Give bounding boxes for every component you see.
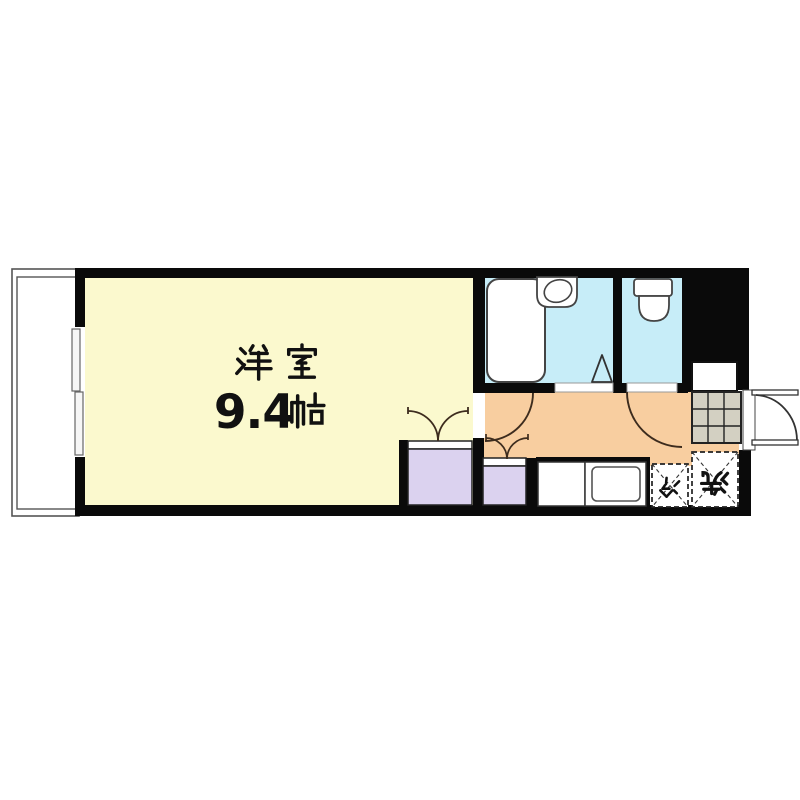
wall-top bbox=[75, 268, 749, 278]
wall-right-upper bbox=[737, 268, 749, 390]
closet-hall-edge bbox=[483, 458, 526, 466]
wall-room-bath bbox=[473, 268, 485, 393]
entrance-door-base bbox=[752, 440, 798, 445]
wall-under-bath bbox=[473, 383, 555, 393]
window bbox=[72, 327, 83, 457]
toilet-bowl bbox=[639, 296, 669, 321]
wall-right-lower bbox=[739, 450, 751, 516]
floorplan-drawing: 洋室 9.4 帖 冷 洗 bbox=[0, 0, 800, 800]
window-pane-upper bbox=[72, 329, 80, 391]
washer-label-text: 洗 bbox=[703, 467, 729, 497]
wall-closet-hall-right bbox=[526, 458, 538, 505]
wall-bottom bbox=[75, 505, 751, 516]
room-size-digits: 9.4 bbox=[214, 385, 294, 440]
closet-room bbox=[408, 441, 472, 505]
balcony-inner-line bbox=[17, 277, 79, 509]
entrance-door-leaf bbox=[752, 390, 798, 395]
entrance-door-icon bbox=[752, 390, 798, 445]
toilet-tank bbox=[634, 279, 672, 296]
bathroom-threshold bbox=[555, 383, 613, 392]
closet-room-edge bbox=[408, 441, 472, 449]
wall-stub-toilet-left bbox=[613, 383, 627, 393]
shoe-cabinet-icon bbox=[692, 362, 737, 391]
washbasin-icon bbox=[537, 276, 577, 307]
room-name-text: 洋室 bbox=[236, 336, 316, 382]
shoe-grid-icon bbox=[692, 392, 741, 443]
closet-room-body bbox=[408, 449, 472, 505]
room-size-unit-text: 帖 bbox=[287, 389, 327, 435]
room-door-opening bbox=[474, 393, 485, 438]
kitchen-counter-left bbox=[538, 462, 585, 506]
entrance-door-arc bbox=[756, 395, 797, 440]
toilet-threshold bbox=[627, 383, 677, 392]
shoe-grid-frame bbox=[692, 392, 741, 443]
closet-hall bbox=[483, 458, 526, 505]
wall-left-upper bbox=[75, 268, 85, 327]
kitchen-sink-icon bbox=[592, 467, 640, 501]
closet-hall-body bbox=[483, 466, 526, 505]
kitchen-counter bbox=[538, 462, 646, 506]
window-pane-lower bbox=[75, 392, 83, 455]
fridge-label-text: 冷 bbox=[659, 475, 681, 500]
wall-left-lower bbox=[75, 457, 85, 505]
wall-closet-room-left bbox=[399, 440, 408, 505]
floorplan-page: 洋室 9.4 帖 冷 洗 bbox=[0, 0, 800, 800]
wall-bath-toilet bbox=[613, 268, 622, 393]
balcony bbox=[12, 269, 79, 516]
